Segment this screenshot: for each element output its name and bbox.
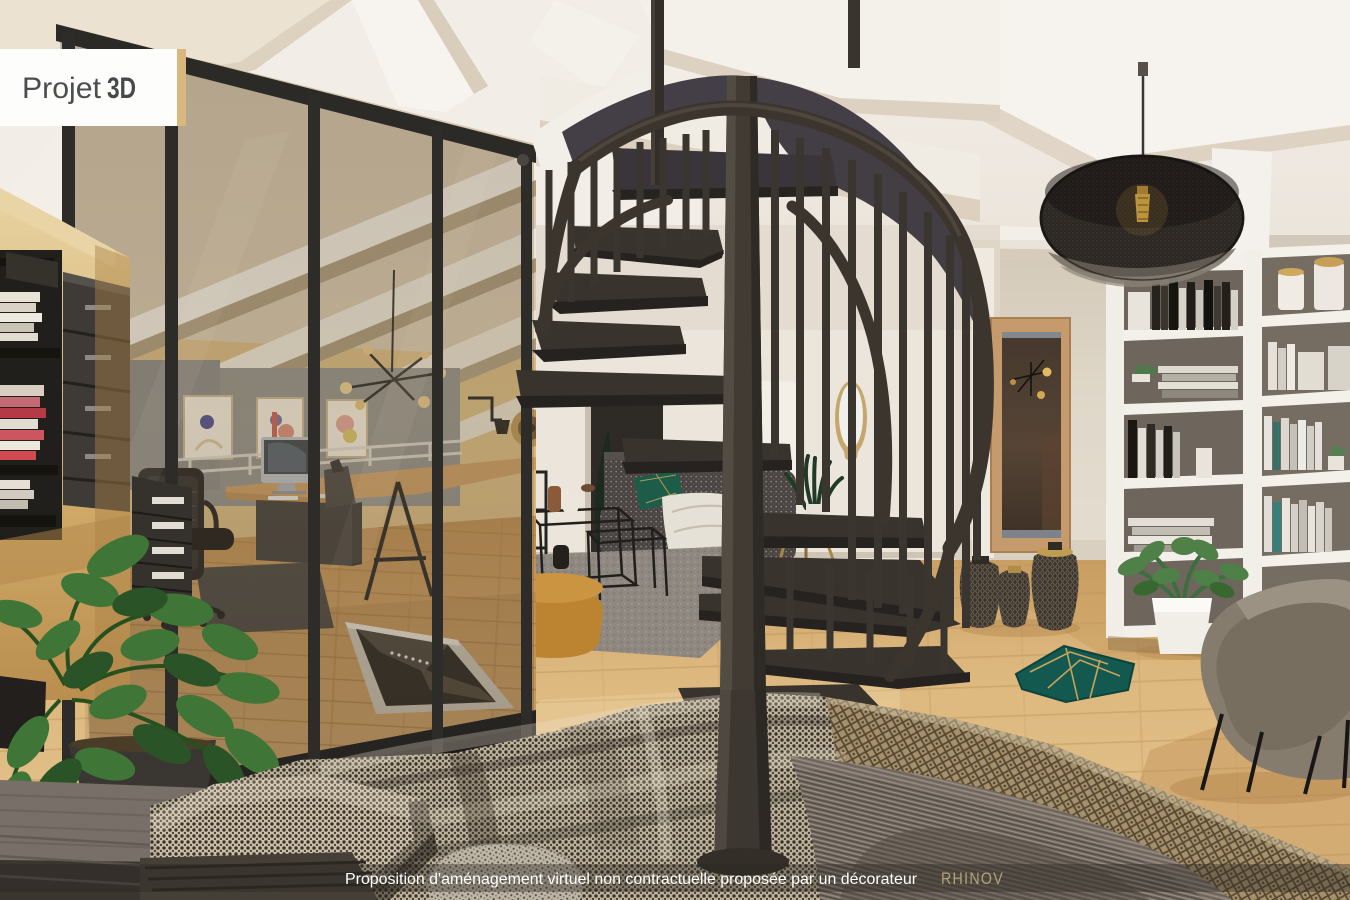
- svg-text:3D: 3D: [107, 72, 136, 105]
- svg-text:RHINOV: RHINOV: [941, 870, 1004, 888]
- svg-text:Proposition d'aménagement virt: Proposition d'aménagement virtuel non co…: [345, 871, 918, 888]
- svg-text:Projet: Projet: [22, 72, 102, 105]
